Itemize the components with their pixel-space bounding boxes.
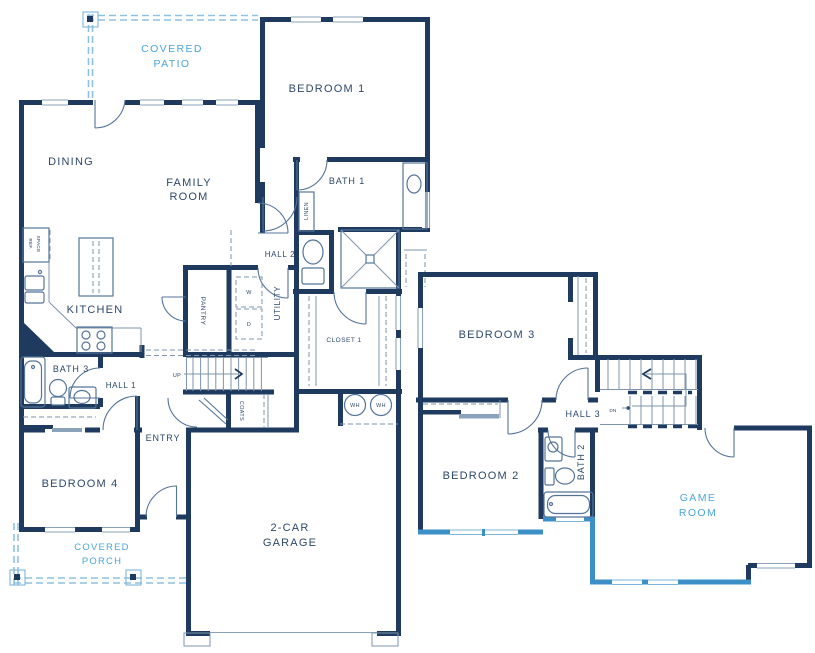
label-hall3: HALL 3 (565, 409, 600, 419)
label-family-room: FAMILY (166, 177, 212, 189)
floor2-stairs (600, 359, 700, 427)
label-dn: DN (609, 408, 616, 413)
label-linen: LINEN (304, 202, 310, 220)
label-bedroom2: BEDROOM 2 (443, 470, 520, 482)
label-up: UP (173, 373, 181, 379)
label-bath1: BATH 1 (329, 176, 365, 186)
label-wh-1: WH (350, 403, 360, 409)
label-washer: W (246, 290, 252, 296)
floor1-windows (42, 14, 433, 535)
label-dryer: D (247, 322, 251, 328)
floor1-stairs (184, 357, 268, 391)
water-heaters (340, 395, 398, 425)
svg-text:GARAGE: GARAGE (263, 537, 317, 549)
svg-text:ROOM: ROOM (679, 507, 717, 519)
covered-patio-outline (83, 12, 258, 99)
floor-plan-svg: COVERED PATIO DINING FAMILY ROOM BEDROOM… (0, 0, 815, 653)
garage-door (184, 628, 398, 646)
floor1-labels: COVERED PATIO DINING FAMILY ROOM BEDROOM… (28, 43, 386, 567)
label-pantry: PANTRY (199, 297, 206, 326)
label-bath3: BATH 3 (53, 364, 89, 374)
label-bedroom4: BEDROOM 4 (42, 478, 119, 490)
bedroom3-closet (578, 276, 586, 355)
bedroom2-closet (419, 400, 500, 419)
label-wh-2: WH (376, 403, 386, 409)
label-garage: 2-CAR (270, 522, 309, 534)
label-coats: COATS (238, 401, 244, 421)
label-hall1: HALL 1 (106, 381, 137, 390)
floor2-windows (415, 308, 795, 587)
label-ref-space: REF. (28, 238, 33, 249)
svg-text:PATIO: PATIO (154, 58, 191, 70)
label-utility: UTILITY (273, 286, 282, 321)
label-game-room: GAME (680, 492, 717, 504)
floor-plan-page: COVERED PATIO DINING FAMILY ROOM BEDROOM… (0, 0, 815, 653)
label-hall2: HALL 2 (265, 250, 296, 259)
label-bedroom3: BEDROOM 3 (459, 329, 536, 341)
label-entry: ENTRY (146, 433, 181, 443)
label-kitchen: KITCHEN (67, 304, 124, 316)
covered-porch-outline (10, 523, 188, 586)
label-dining: DINING (48, 156, 94, 168)
label-bedroom1: BEDROOM 1 (289, 83, 366, 95)
label-bath2: BATH 2 (576, 444, 586, 480)
label-closet1: CLOSET 1 (326, 337, 361, 344)
label-covered-patio: COVERED (141, 43, 203, 55)
utility-fixtures (231, 230, 268, 428)
svg-text:PORCH: PORCH (82, 556, 122, 567)
label-covered-porch: COVERED (74, 542, 129, 553)
svg-text:ROOM: ROOM (169, 191, 208, 203)
svg-text:SPACE: SPACE (36, 235, 41, 252)
